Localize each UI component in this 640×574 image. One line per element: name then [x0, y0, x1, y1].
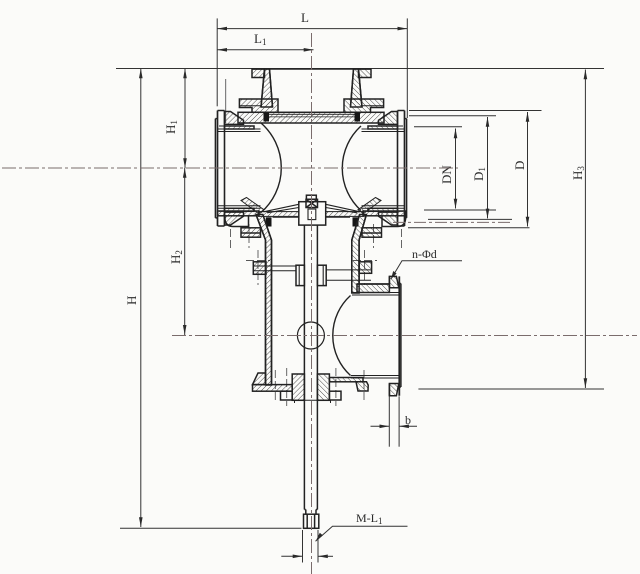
- svg-text:L: L: [301, 10, 309, 25]
- svg-text:D: D: [512, 161, 527, 170]
- svg-text:H: H: [124, 296, 139, 305]
- svg-text:H2: H2: [168, 250, 184, 264]
- svg-text:L1: L1: [254, 31, 266, 47]
- svg-text:H3: H3: [570, 166, 586, 180]
- svg-text:M-L1: M-L1: [356, 511, 383, 526]
- svg-text:D1: D1: [471, 167, 487, 181]
- svg-text:H1: H1: [163, 120, 179, 134]
- svg-text:b: b: [405, 413, 411, 427]
- svg-text:n-Φd: n-Φd: [412, 247, 437, 261]
